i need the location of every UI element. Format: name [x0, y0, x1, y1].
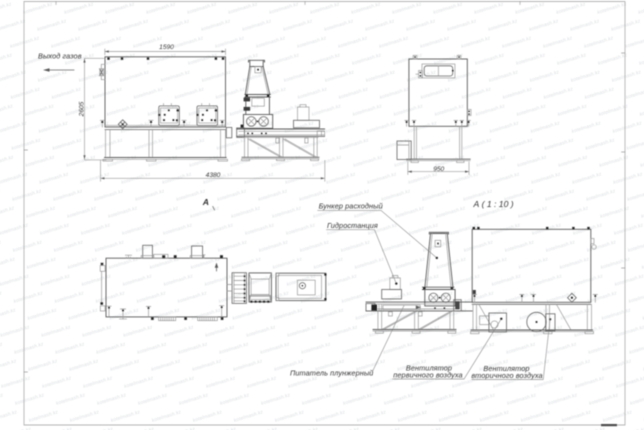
svg-text:Питатель плунжерный: Питатель плунжерный: [290, 369, 373, 378]
svg-text:А ( 1 : 10 ): А ( 1 : 10 ): [473, 199, 514, 209]
svg-text:1590: 1590: [159, 44, 174, 51]
svg-text:2605: 2605: [79, 101, 86, 117]
svg-text:А: А: [202, 197, 209, 207]
svg-text:950: 950: [433, 166, 444, 173]
svg-text:вторичного воздуха: вторичного воздуха: [471, 371, 542, 380]
svg-text:Бункер расходный: Бункер расходный: [319, 202, 383, 211]
svg-text:Гидростанция: Гидростанция: [327, 221, 378, 230]
svg-text:Выход газов: Выход газов: [38, 51, 82, 60]
svg-text:первичного воздуха: первичного воздуха: [393, 370, 462, 379]
svg-text:4380: 4380: [206, 172, 221, 179]
